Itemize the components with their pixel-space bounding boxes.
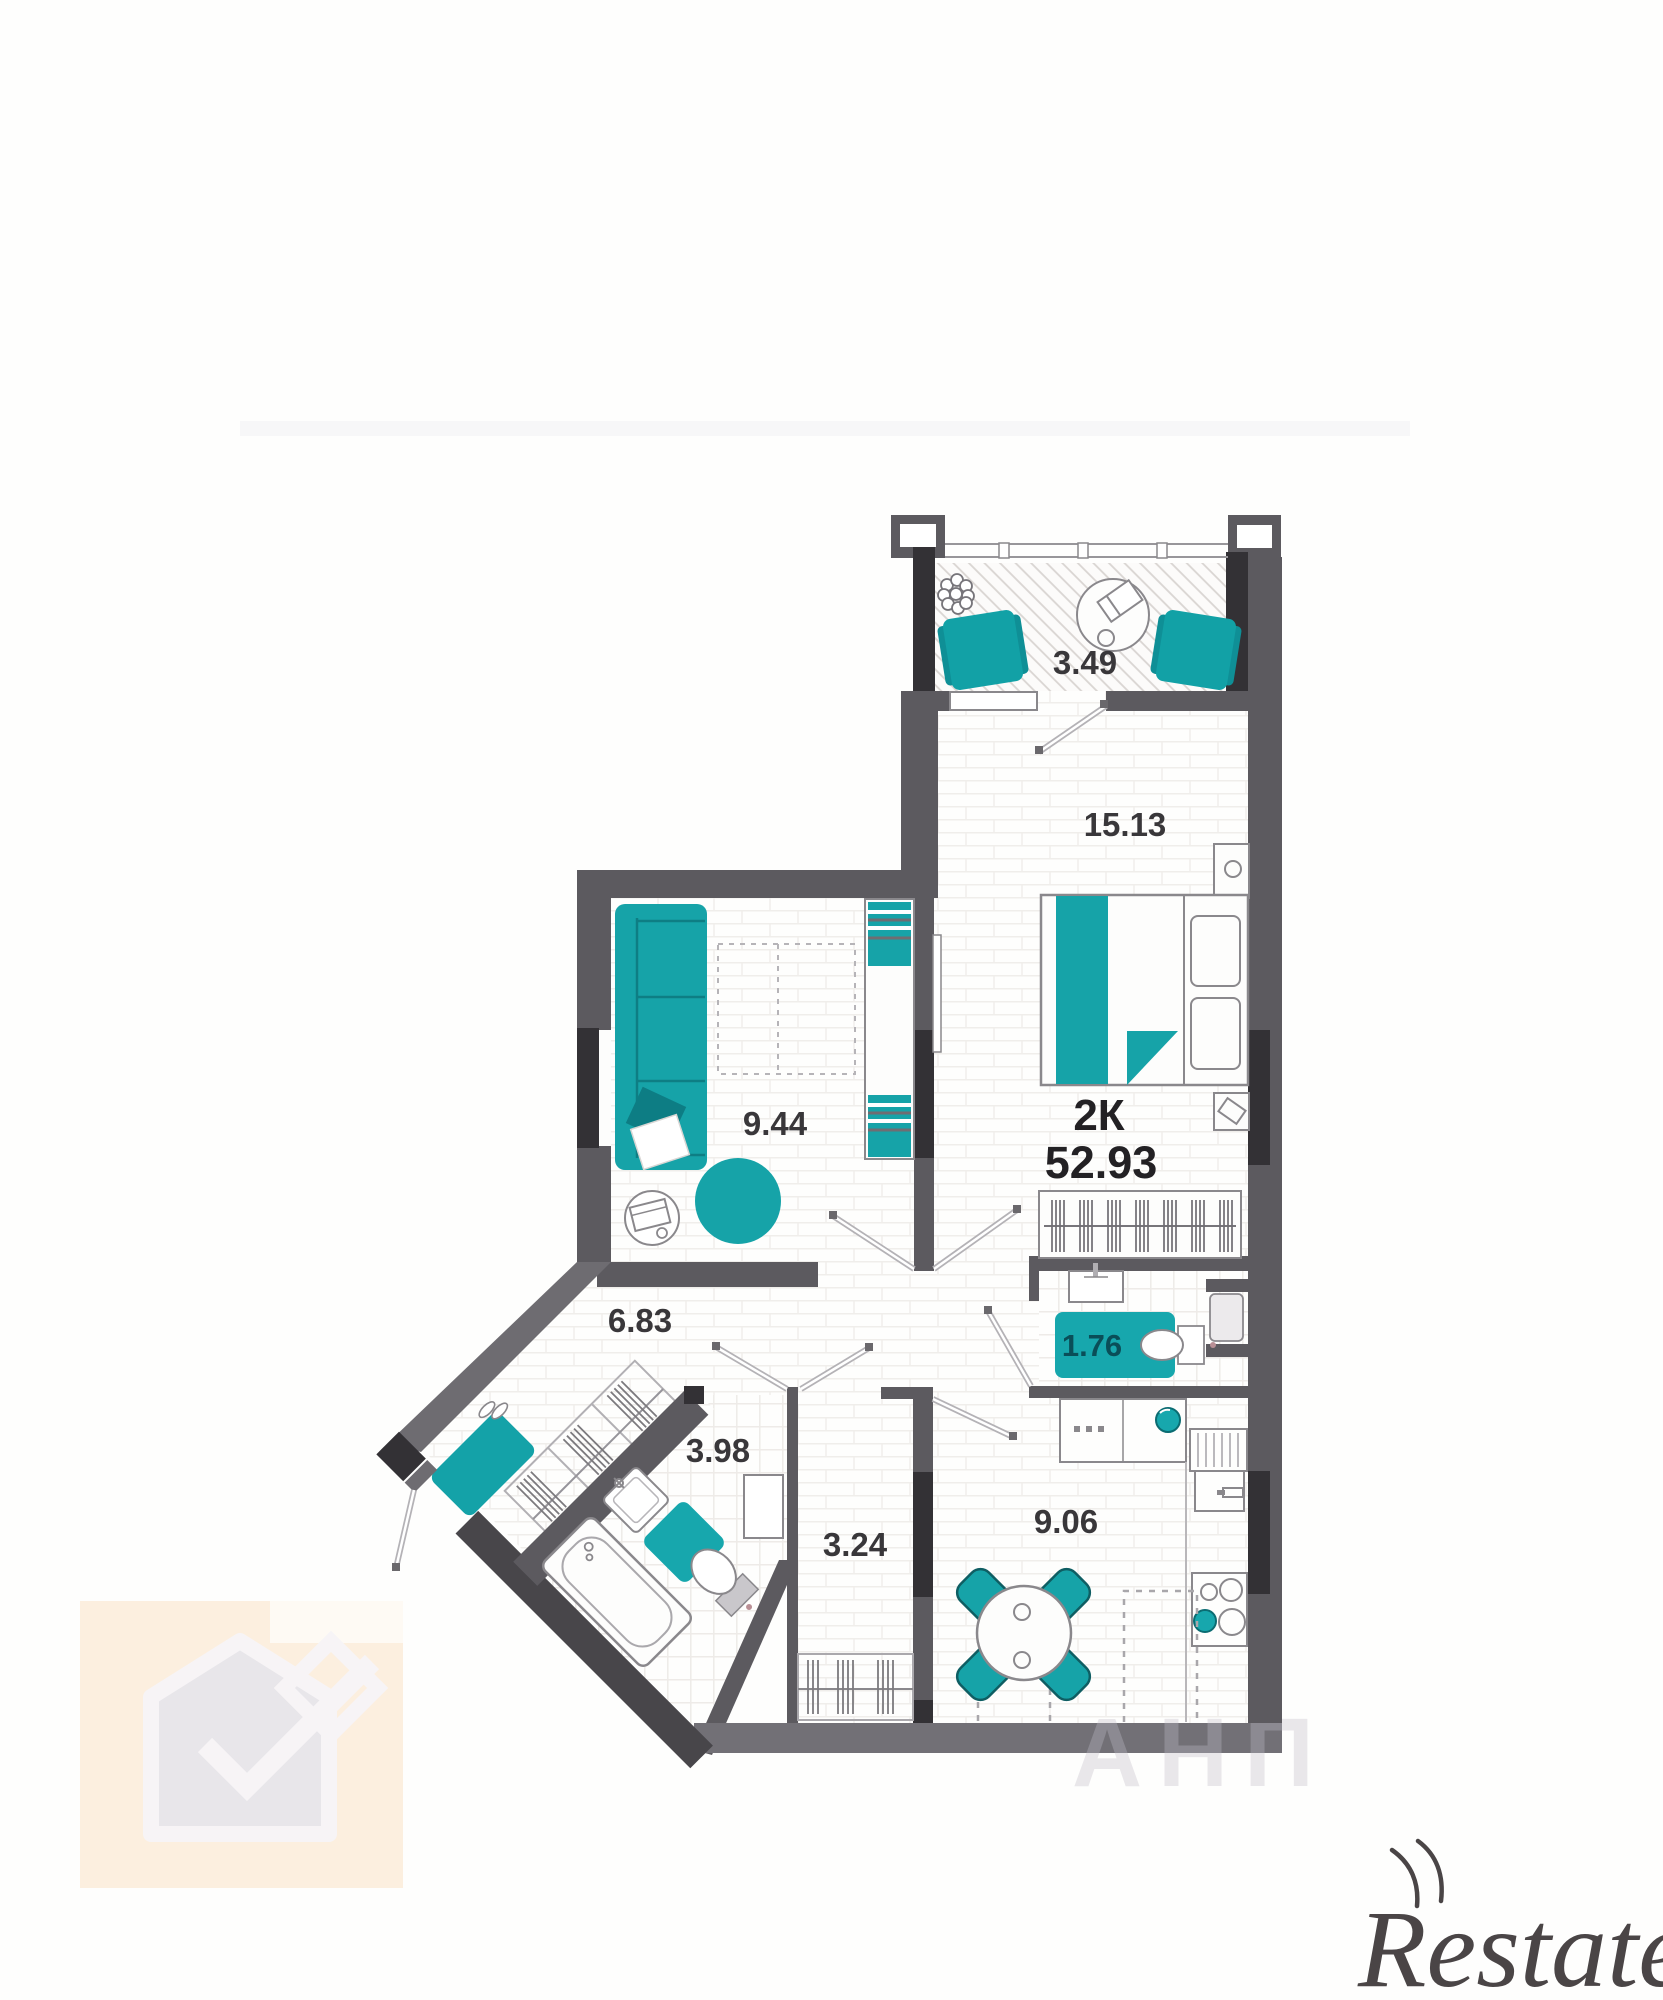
- svg-text:3.98: 3.98: [686, 1432, 750, 1469]
- svg-text:Restate: Restate: [1357, 1888, 1663, 2000]
- svg-text:52.93: 52.93: [1045, 1137, 1158, 1188]
- svg-text:6.83: 6.83: [608, 1302, 672, 1339]
- svg-text:9.44: 9.44: [743, 1105, 808, 1142]
- svg-text:3.49: 3.49: [1053, 644, 1117, 681]
- svg-text:1.76: 1.76: [1062, 1328, 1122, 1363]
- svg-text:15.13: 15.13: [1084, 806, 1167, 843]
- svg-text:3.24: 3.24: [823, 1526, 888, 1563]
- svg-text:2К: 2К: [1073, 1091, 1124, 1140]
- svg-text:9.06: 9.06: [1034, 1503, 1098, 1540]
